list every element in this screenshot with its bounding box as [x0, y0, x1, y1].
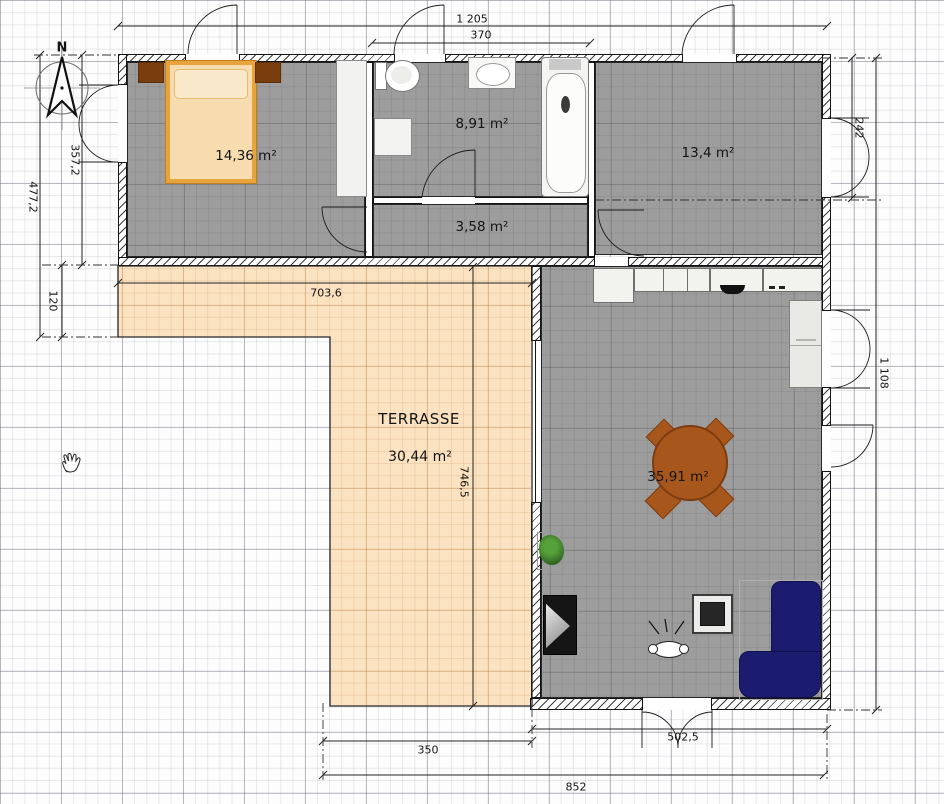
bathroom-door-gap[interactable]: [422, 197, 475, 204]
counter-divider: [687, 269, 688, 291]
wall-north-living[interactable]: [628, 257, 831, 266]
north-label: N: [57, 41, 68, 56]
dimension-bottom-total[interactable]: 852: [566, 781, 587, 794]
toilet[interactable]: [375, 60, 419, 90]
dimension-terrace-width[interactable]: 703,6: [310, 287, 342, 300]
corner-sofa-chaise[interactable]: [739, 651, 821, 698]
floor-lamp[interactable]: [650, 638, 686, 658]
dimension-left-total[interactable]: 477,2: [27, 181, 40, 213]
pan-cursor-icon: [63, 454, 80, 472]
wall-bathroom-hallway[interactable]: [373, 197, 588, 204]
bed[interactable]: [165, 60, 257, 184]
bathtub-basin: [546, 73, 586, 193]
wall-bathroom-office[interactable]: [588, 62, 595, 257]
kitchen-sink-counter[interactable]: [710, 268, 763, 292]
bathtub-drain: [561, 96, 570, 113]
bathtub-faucet: [549, 59, 581, 70]
living-french-door-south[interactable]: [642, 698, 712, 710]
fridge-handle: [796, 339, 816, 341]
sliding-door-rail: [535, 341, 536, 502]
refrigerator[interactable]: [789, 300, 822, 388]
tv[interactable]: [543, 595, 577, 655]
stove-knob: [769, 286, 775, 289]
dimension-terrace-height[interactable]: 746,5: [458, 466, 471, 498]
bathroom-area-label[interactable]: 8,91 m²: [456, 116, 509, 132]
kitchen-counter[interactable]: [634, 268, 710, 292]
fridge-divider: [790, 345, 821, 346]
living-window-east[interactable]: [822, 310, 831, 388]
wardrobe[interactable]: [336, 60, 367, 197]
dimension-top-total[interactable]: 1 205: [456, 13, 488, 26]
wall-south-bedroom[interactable]: [118, 257, 595, 266]
tv-screen: [546, 602, 572, 650]
shower-base[interactable]: [374, 118, 412, 156]
dimension-bathroom-width[interactable]: 370: [471, 29, 492, 42]
coffee-table-top: [700, 602, 725, 626]
dimension-terrace-offset[interactable]: 120: [47, 291, 60, 312]
terrace-sliding-door[interactable]: [531, 340, 541, 503]
plant-foliage: [539, 535, 564, 565]
terrace-area-label[interactable]: 30,44 m²: [388, 449, 452, 465]
dimension-living-width[interactable]: 502,5: [667, 731, 699, 744]
toilet-bowl-inner: [391, 66, 412, 84]
office-window[interactable]: [822, 118, 831, 198]
bed-pillow: [174, 69, 248, 99]
dimension-window-height[interactable]: 242: [853, 118, 866, 139]
nightstand-left[interactable]: [138, 62, 164, 83]
sink-basin: [476, 63, 510, 86]
living-hall-opening[interactable]: [595, 257, 628, 266]
dimension-right-total[interactable]: 1 108: [878, 357, 891, 389]
living-door-east[interactable]: [822, 425, 831, 472]
office-entry-door[interactable]: [682, 54, 737, 62]
north-indicator-icon: [24, 46, 100, 130]
dining-table[interactable]: [652, 425, 728, 501]
nightstand-right[interactable]: [255, 62, 281, 83]
lamp-knob: [648, 644, 658, 654]
dimension-terrace-bottom[interactable]: 350: [418, 744, 439, 757]
terrace-name-label[interactable]: TERRASSE: [378, 410, 460, 428]
bathroom-sink[interactable]: [468, 57, 516, 89]
lamp-knob: [679, 644, 689, 654]
hallway-area-label[interactable]: 3,58 m²: [456, 219, 509, 235]
floor-plan-canvas[interactable]: 14,36 m² 8,91 m² 13,4 m² 3,58 m² 35,91 m…: [0, 0, 944, 804]
bedroom-area-label[interactable]: 14,36 m²: [215, 148, 277, 164]
dimension-bedroom-height[interactable]: 357,2: [69, 144, 82, 176]
stove-knob: [779, 286, 785, 289]
office-area-label[interactable]: 13,4 m²: [682, 145, 735, 161]
kitchen-cabinet-tall[interactable]: [593, 268, 634, 303]
living-area-label[interactable]: 35,91 m²: [647, 469, 709, 485]
bedroom-window[interactable]: [118, 84, 127, 163]
counter-divider: [663, 269, 664, 291]
coffee-table[interactable]: [692, 594, 733, 634]
kitchen-stove-counter[interactable]: [763, 268, 822, 292]
potted-plant[interactable]: [537, 532, 565, 570]
bathtub[interactable]: [541, 57, 589, 197]
